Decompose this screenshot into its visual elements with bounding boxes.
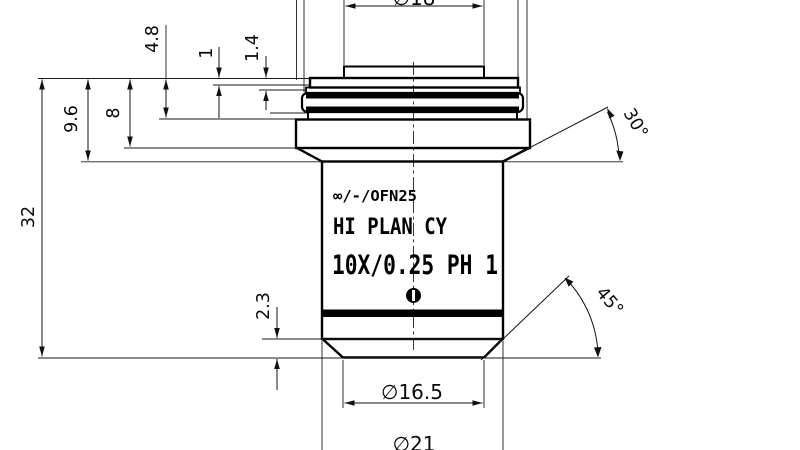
marking-line3: 10X/0.25 PH 1 [332, 250, 498, 281]
arc-arrow-45-bottom [594, 347, 602, 358]
angle-arc-30 [608, 112, 620, 156]
arc-arrow-30-bottom [616, 151, 623, 162]
extension-lines [38, 79, 623, 450]
dim-2p3-label: 2.3 [254, 292, 274, 320]
objective-outline [296, 62, 530, 358]
mounting-flange [296, 120, 530, 149]
upper-ring-1 [310, 78, 518, 88]
dim-top-diameter-label: ∅18 [393, 0, 436, 10]
dim-4p8-label: 4.8 [143, 25, 163, 53]
objective-markings: ∞/-/OFN25 HI PLAN CY 10X/0.25 PH 1 [332, 187, 498, 281]
angle-30-label: 30° [619, 105, 652, 142]
dim-tip-diameter-label: ∅16.5 [381, 380, 443, 404]
marking-line2: HI PLAN CY [333, 215, 448, 240]
dim-9p6-label: 9.6 [62, 105, 82, 133]
angle-arc-45 [567, 280, 598, 354]
drawing-canvas: ∞/-/OFN25 HI PLAN CY 10X/0.25 PH 1 [0, 0, 800, 450]
marking-line1: ∞/-/OFN25 [333, 187, 417, 205]
dim-body-diameter-label: ∅21 [393, 432, 436, 450]
dim-8-label: 8 [104, 107, 124, 118]
dim-32-label: 32 [19, 206, 39, 228]
dim-1p4-label: 1.4 [243, 34, 263, 62]
dim-1-label: 1 [197, 47, 217, 58]
flange-taper-left [297, 148, 322, 162]
top-cap [344, 67, 484, 79]
tip-chamfer-left [323, 339, 344, 358]
angle-45-label: 45° [592, 283, 627, 320]
angle-line-45 [481, 276, 569, 360]
angle-line-30 [504, 107, 608, 161]
top-cutoff-extension-lines [297, 0, 528, 119]
black-grip-band [322, 310, 503, 318]
objective-dimension-drawing: ∞/-/OFN25 HI PLAN CY 10X/0.25 PH 1 [0, 0, 800, 450]
arc-arrow-30-top [607, 108, 615, 119]
